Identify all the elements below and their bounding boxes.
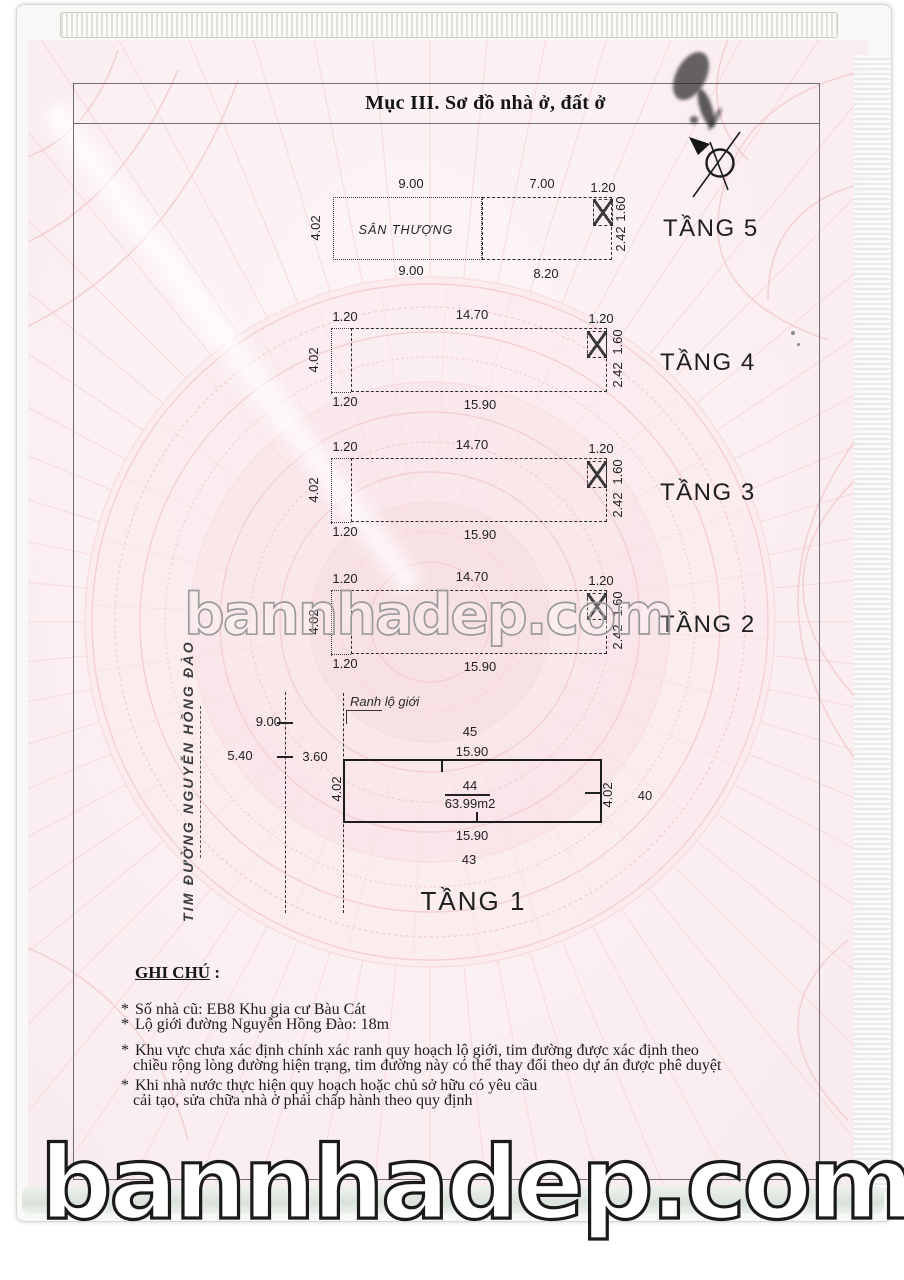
notes-heading-text: GHI CHÚ (135, 963, 210, 982)
dim-tick (277, 756, 293, 758)
note-text: chiều rộng lòng đường hiện trạng, tim đư… (133, 1057, 721, 1074)
watermark-bottom: bannhadep.com (40, 1124, 904, 1242)
dim-lot-right: 4.02 (601, 775, 615, 815)
adjacent-lot-above: 45 (430, 725, 510, 739)
dim-tick (441, 761, 443, 772)
note-line: *Lộ giới đường Nguyễn Hồng Đào: 18m (121, 1016, 389, 1033)
dim-left-of-edge: 5.40 (210, 749, 270, 763)
notes-heading-colon: : (210, 963, 220, 982)
note-text: cải tạo, sửa chữa nhà ở phải chấp hành t… (133, 1092, 472, 1109)
note-text: Lộ giới đường Nguyễn Hồng Đào: 18m (135, 1016, 389, 1033)
dim-tick (277, 722, 293, 724)
note-line: chiều rộng lòng đường hiện trạng, tim đư… (133, 1057, 721, 1074)
scanned-document-page: Mục III. Sơ đồ nhà ở, đất ở 9.00 7.00 1.… (0, 0, 904, 1280)
note-bullet: * (121, 1016, 129, 1033)
floor-label: TẦNG 1 (391, 887, 556, 915)
adjacent-lot-right: 40 (625, 789, 665, 803)
road-edge-line (285, 692, 286, 913)
notes-heading: GHI CHÚ : (135, 963, 220, 983)
dim-centerline-to-boundary: 9.00 (221, 715, 281, 729)
note-line: cải tạo, sửa chữa nhà ở phải chấp hành t… (133, 1092, 472, 1109)
lot-area: 63.99m2 (427, 797, 513, 811)
dim-lot-bottom: 15.90 (432, 829, 512, 843)
boundary-leader-line (346, 710, 382, 724)
lot-number: 44 (430, 779, 510, 793)
road-centerline (200, 706, 201, 858)
ink-smudge (690, 116, 698, 124)
boundary-label: Ranh lộ giới (350, 694, 419, 709)
dim-lot-top: 15.90 (432, 745, 512, 759)
dim-edge-to-boundary: 3.60 (285, 750, 345, 764)
street-name-label: TIM ĐƯỜNG NGUYỄN HỒNG ĐÀO (180, 672, 196, 922)
dim-lot-left: 4.02 (330, 769, 344, 809)
note-bullet: * (121, 1042, 129, 1059)
dim-tick (476, 812, 478, 823)
watermark-middle: bannhadep.com (184, 582, 672, 648)
note-bullet: * (121, 1077, 129, 1094)
adjacent-lot-below: 43 (429, 853, 509, 867)
